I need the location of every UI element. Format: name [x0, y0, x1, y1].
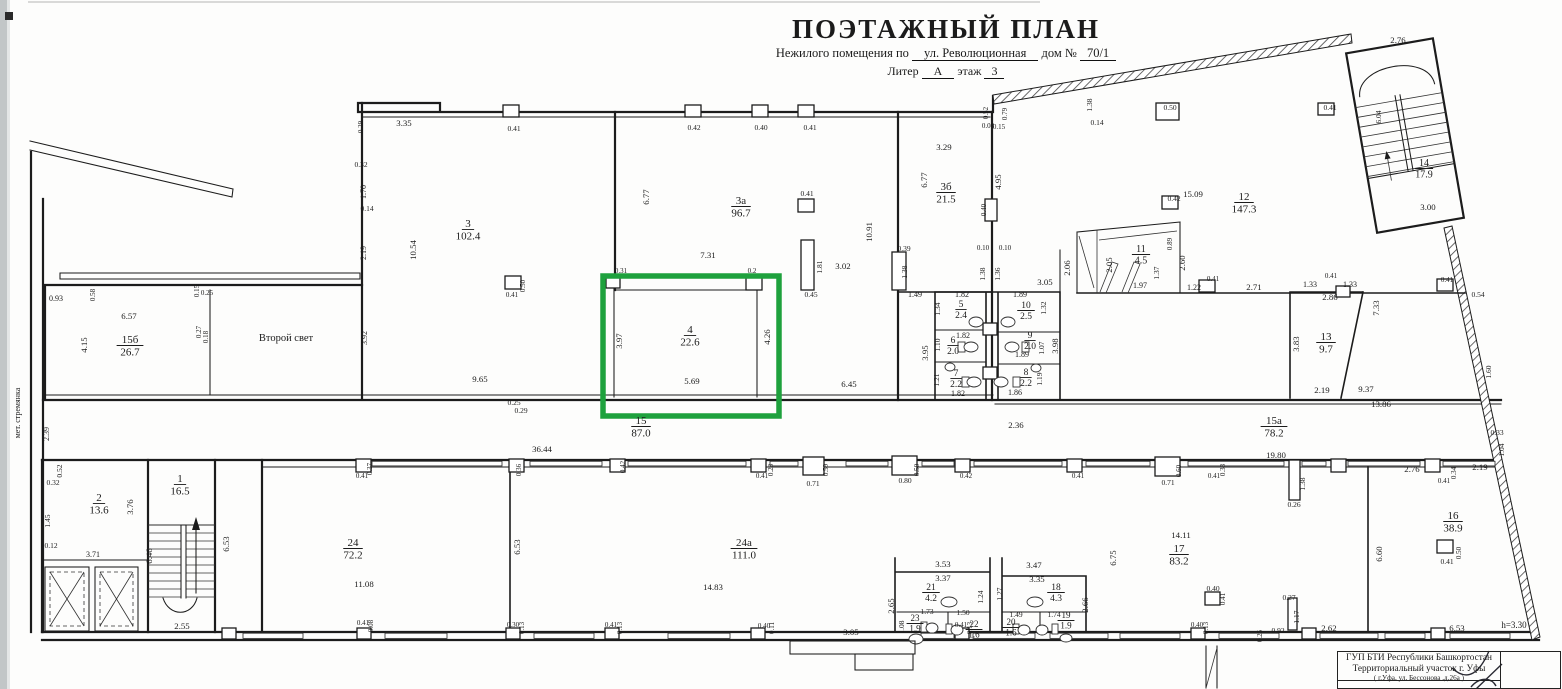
room-number: 12: [1239, 191, 1250, 203]
dimension-label: 3.35: [396, 118, 412, 128]
dimension-label: 0.41: [1325, 272, 1338, 280]
dimension-label: 1.45: [43, 514, 52, 527]
dimension-label: 1.27: [995, 587, 1004, 600]
dimension-label: 2.60: [1177, 255, 1187, 271]
dimension-label: 4.26: [762, 329, 772, 345]
dimension-label: 0.52: [55, 464, 64, 477]
room-number: 15б: [122, 334, 139, 346]
room-label: 2472.2: [343, 537, 363, 562]
stairs-direction-arrow: [192, 517, 200, 530]
dimension-label: 13.86: [1371, 399, 1391, 409]
dimension-label: 0.41: [1438, 477, 1451, 485]
room-number: 24а: [736, 537, 752, 549]
dimension-label: мет. стремянка: [13, 387, 22, 438]
dimension-label: 1.19: [1035, 372, 1044, 385]
dimension-label: 1.38: [900, 265, 909, 278]
dimension-label: 14.11: [1171, 530, 1190, 540]
dimension-label: 6.53: [512, 539, 522, 555]
room-number: 5: [959, 300, 964, 310]
room-label: 92.0: [1024, 331, 1036, 352]
room-label: 214.2: [922, 583, 940, 604]
room-number: 15а: [1266, 415, 1282, 427]
room-area: 16.5: [170, 486, 190, 498]
dimension-label: 2.39: [42, 427, 51, 441]
dimension-label: 1.34: [933, 302, 942, 315]
dimension-label: 0.31: [615, 267, 628, 275]
dimension-label: 0.13: [1202, 621, 1210, 634]
dimension-label: 1.81: [815, 260, 824, 273]
exterior-walls: [30, 34, 1540, 640]
dimension-label: 3.53: [935, 559, 951, 569]
dimension-label: 0.50: [1455, 546, 1463, 559]
dimension-label: 0.89: [1166, 237, 1174, 250]
dimension-label: 14.83: [703, 582, 723, 592]
dimension-label: 6.53: [1449, 623, 1465, 633]
dimension-label: 0.29: [514, 406, 527, 415]
dimension-label: 2.76: [1390, 35, 1406, 45]
liter-value: А: [922, 64, 955, 79]
dimension-label: 0.41: [1219, 592, 1227, 605]
dimension-label: 0.41: [506, 291, 519, 299]
dimension-label: 19.80: [1266, 450, 1286, 460]
dimension-label: 0.41: [1323, 103, 1336, 112]
dimension-label: 0.79: [1001, 107, 1009, 120]
dimension-label: 0.40: [1206, 584, 1219, 593]
dimension-label: 6.45: [841, 379, 857, 389]
room-number: 7: [954, 369, 959, 379]
room-label: 52.4: [955, 300, 967, 321]
dimension-label: 2.19: [1314, 385, 1330, 395]
dimension-label: 2.19: [1472, 462, 1488, 472]
dimension-label: 10.91: [864, 222, 874, 242]
room-number: 18: [1051, 583, 1061, 593]
room-label: 3б21.5: [936, 181, 956, 206]
dimension-label: 0.33: [1219, 463, 1227, 476]
room-number: 17: [1174, 543, 1186, 555]
room-number: 1: [177, 473, 183, 485]
dimension-label: 1.82: [951, 389, 965, 398]
room-number: 8: [1024, 368, 1029, 378]
dimension-label: 0.60: [1175, 464, 1183, 477]
dimension-label: 3.83: [1291, 336, 1301, 352]
room-area: 78.2: [1264, 428, 1283, 440]
bti-stamp: ГУП БТИ Республики Башкортостан Территор…: [1337, 651, 1561, 689]
house-number: 70/1: [1080, 46, 1116, 61]
room-number: 3: [465, 218, 471, 230]
dimension-label: 0.41: [1441, 276, 1454, 284]
room-area: 72.2: [343, 550, 362, 562]
room-number: 10: [1021, 301, 1031, 311]
stairs-bottom-left: [148, 517, 215, 612]
room-area: 111.0: [732, 550, 756, 562]
dimension-label: 0.41: [800, 189, 813, 198]
dimension-labels: 3.350.290.410.420.400.410.321.700.142.19…: [13, 35, 1527, 642]
floor-value: 3: [984, 64, 1004, 79]
interior-walls: [210, 250, 1465, 632]
dimension-label: 6.77: [919, 172, 929, 188]
dimension-label: 1.33: [1343, 280, 1357, 289]
room-area: 102.4: [456, 231, 481, 243]
room-label: 422.6: [680, 324, 700, 349]
room-number: 3а: [736, 195, 747, 207]
dimension-label: 1.73: [920, 607, 933, 616]
room-number: 4: [687, 324, 693, 336]
floor-plan-page: 3.350.290.410.420.400.410.321.700.142.19…: [0, 0, 1562, 689]
dimension-label: 1.32: [1039, 301, 1048, 314]
room-number: 9: [1028, 331, 1033, 341]
windows: [243, 461, 1510, 638]
room-label: 139.7: [1316, 331, 1336, 356]
room-label: 82.2: [1020, 368, 1032, 389]
dimension-label: 7.33: [1371, 300, 1381, 316]
dimension-label: 36.44: [532, 444, 552, 454]
room-label: 116.5: [170, 473, 190, 498]
dimension-label: 0.14: [1090, 118, 1103, 127]
dimension-label: 0.59: [822, 463, 830, 476]
dimension-label: 6.75: [1108, 550, 1118, 566]
room-number: 14: [1419, 158, 1429, 169]
dimension-label: h=3.30: [1501, 620, 1527, 630]
dimension-label: 3.92: [360, 331, 369, 345]
dimension-label: 0.13: [518, 621, 526, 634]
dimension-label: 1.60: [1484, 365, 1493, 378]
room-area: 17.9: [1415, 170, 1433, 181]
room-number: 13: [1321, 331, 1333, 343]
elevator-shafts: [45, 567, 138, 631]
dimension-label: 1.37: [1152, 266, 1161, 279]
room-area: 2.2: [950, 380, 962, 390]
room-label: 3102.4: [456, 218, 481, 243]
dimension-label: 3.37: [935, 573, 951, 583]
room-area: 4.3: [1050, 594, 1062, 604]
room-area: 26.7: [120, 347, 140, 359]
dimension-label: 11.08: [354, 579, 374, 589]
dimension-label: 0.27: [1282, 593, 1295, 602]
room-label: 72.2: [950, 369, 962, 390]
dimension-label: 3.02: [835, 261, 850, 271]
dimension-label: 1.04: [1497, 443, 1506, 456]
dimension-label: 0.36: [515, 463, 523, 476]
dimension-label: 3.05: [1037, 277, 1053, 287]
dimension-label: 0.42: [619, 460, 627, 473]
dimension-label: 0.41: [507, 124, 520, 133]
dimension-label: 0.93: [49, 294, 63, 303]
room-label: 1783.2: [1169, 543, 1189, 568]
dimension-label: 6.46: [144, 548, 154, 564]
title-subtitle: Нежилого помещения по ул. Революционная …: [728, 46, 1164, 61]
dimension-label: 0.41: [1072, 472, 1085, 480]
dimension-label: 3.71: [86, 550, 100, 559]
room-label: 213.6: [89, 492, 109, 517]
dimension-label: 0.18: [202, 330, 210, 343]
dimension-label: 1.24: [976, 590, 985, 603]
dimension-label: 0.33: [1490, 428, 1503, 437]
dimension-label: 0.26: [1287, 500, 1300, 509]
dimension-label: 1.89: [1013, 290, 1027, 299]
dimension-label: 0.54: [1471, 290, 1484, 299]
dimension-label: 0.50: [519, 279, 527, 292]
room-number: 16: [1448, 510, 1460, 522]
dimension-label: 6.53: [221, 536, 231, 552]
dimension-label: 0.41: [803, 123, 816, 132]
floor-plan-canvas: 3.350.290.410.420.400.410.321.700.142.19…: [0, 0, 1562, 689]
room-area: 83.2: [1169, 556, 1188, 568]
dimension-label: 3.29: [936, 142, 952, 152]
room-area: 13.6: [89, 505, 109, 517]
dimension-label: 0.40: [754, 123, 767, 132]
dimension-label: 4.95: [993, 174, 1003, 190]
dimension-label: 0.40: [980, 203, 988, 216]
dimension-label: 0.25: [201, 289, 214, 297]
dimension-label: 3.47: [1026, 560, 1042, 570]
dimension-label: 2.19: [359, 246, 368, 260]
room-area: 4.5: [1135, 256, 1148, 267]
dimension-label: 3.95: [920, 345, 930, 361]
dimension-label: 1.50: [956, 608, 969, 617]
room-area: 1.9: [909, 624, 921, 634]
dimension-label: 0.32: [354, 160, 367, 169]
room-area: 22.6: [680, 337, 700, 349]
stairwell-top-right: [1346, 38, 1464, 232]
title-block: ПОЭТАЖНЫЙ ПЛАН Нежилого помещения по ул.…: [728, 14, 1164, 79]
dimension-label: 0.42: [687, 123, 700, 132]
dimension-label: 0.39: [897, 244, 910, 253]
dimension-label: 1.38: [1298, 477, 1307, 490]
room-area: 96.7: [731, 208, 751, 220]
scan-edge-artifacts: [0, 0, 1040, 689]
dimension-label: 3.97: [614, 333, 624, 349]
dimension-label: Второй свет: [259, 333, 314, 344]
dimension-label: 3.05: [843, 627, 859, 637]
dimension-label: 1.82: [956, 331, 970, 340]
dimension-label: 2.65: [886, 598, 896, 614]
dimension-label: 2.71: [1246, 282, 1261, 292]
dimension-label: 1.22: [1187, 283, 1201, 292]
dimension-label: 0.41: [1207, 275, 1220, 283]
dimension-label: 0.42: [1167, 194, 1180, 203]
dimension-label: 0.08: [367, 619, 375, 632]
dimension-label: 5.69: [684, 376, 700, 386]
dimension-label: 2.36: [1008, 420, 1024, 430]
dimension-label: 9.37: [1358, 384, 1374, 394]
room-area: 21.5: [936, 194, 956, 206]
exterior-steps: [790, 641, 1217, 688]
room-area: 1.6: [1005, 628, 1017, 638]
room-area: 2.2: [1020, 379, 1032, 389]
dimension-label: 2.76: [1404, 464, 1420, 474]
dimension-label: 10.54: [408, 240, 418, 260]
room-area: 2.4: [955, 311, 967, 321]
room-number: 20: [1007, 617, 1017, 627]
dimension-label: 1.17: [1292, 610, 1301, 623]
structural-columns: [222, 103, 1453, 639]
dimension-label: 1.38: [978, 267, 987, 280]
room-area: 1.9: [1060, 621, 1072, 631]
dimension-label: 6.04: [1374, 110, 1383, 123]
dimension-label: 0.92: [1271, 626, 1284, 635]
room-label: 102.5: [1017, 301, 1035, 322]
room-area: 2.0: [1024, 342, 1036, 352]
stamp-empty-row: [1338, 680, 1500, 688]
room-area: 147.3: [1232, 204, 1257, 216]
dimension-label: 4.15: [79, 337, 89, 353]
dimension-label: 0.15: [993, 123, 1006, 131]
dimension-label: 6.77: [641, 189, 651, 205]
dimension-label: 0.71: [1161, 478, 1174, 487]
dimension-label: 0.50: [1163, 103, 1176, 112]
dimension-label: 0.37: [366, 462, 374, 475]
dimension-label: 0.10: [999, 244, 1012, 252]
dimension-label: 9.65: [472, 374, 488, 384]
room-label: 12147.3: [1232, 191, 1257, 216]
room-label: 3а96.7: [731, 195, 751, 220]
dimension-label: 0.52: [982, 106, 990, 119]
room-number: 15: [636, 415, 648, 427]
stamp-org: ГУП БТИ Республики Башкортостан: [1338, 653, 1500, 664]
room-area: 2.5: [1020, 312, 1032, 322]
dimension-label: 0.34: [1450, 466, 1458, 479]
dimension-label: 3.35: [1029, 574, 1045, 584]
dimension-label: 1.36: [993, 267, 1002, 280]
page-title: ПОЭТАЖНЫЙ ПЛАН: [728, 14, 1164, 45]
stamp-dept: Территориальный участок г. Уфы: [1338, 664, 1500, 675]
dimension-label: 0.45: [804, 290, 817, 299]
room-label: 114.5: [1132, 244, 1150, 267]
dimension-label: 0.23: [767, 463, 775, 476]
room-number: 21: [926, 583, 936, 593]
dimension-label: 2.66: [1080, 597, 1090, 613]
dimension-label: 0.58: [89, 288, 97, 301]
dimension-label: 1.08: [897, 620, 906, 633]
dimension-label: 0.12: [44, 541, 57, 550]
room-area: 38.9: [1443, 523, 1463, 535]
room-label: 1417.9: [1415, 158, 1433, 181]
street-name: ул. Революционная: [912, 46, 1038, 61]
dimension-label: 2.86: [1322, 292, 1338, 302]
room-number: 6: [951, 336, 956, 346]
dimension-label: 0.80: [898, 476, 911, 485]
dimension-label: 1.10: [933, 338, 942, 351]
dimension-label: 0.11: [768, 622, 776, 634]
room-label: 24а111.0: [731, 537, 758, 562]
room-area: 87.0: [631, 428, 651, 440]
dimension-label: 0.50: [913, 463, 921, 476]
room-area: 4.2: [925, 594, 937, 604]
room-number: 2: [96, 492, 102, 504]
room-area: 2.0: [947, 347, 959, 357]
dimension-label: 1.38: [1085, 98, 1094, 111]
title-liter-line: Литер А этаж 3: [728, 64, 1164, 79]
dimension-label: 1.86: [1008, 388, 1022, 397]
room-label: 15а78.2: [1261, 415, 1288, 440]
dimension-label: 2.55: [174, 621, 190, 631]
dimension-label: 3.00: [1420, 202, 1436, 212]
dimension-label: 3.98: [1050, 338, 1060, 354]
dimension-label: 0.25: [1256, 629, 1264, 642]
dimension-label: 0.29: [357, 120, 365, 133]
closet-room-11: [1077, 222, 1180, 293]
dimension-label: 1.97: [1133, 281, 1147, 290]
room-label: 15б26.7: [117, 334, 144, 359]
room-area: 9.7: [1319, 344, 1333, 356]
dimension-label: 1.49: [908, 290, 922, 299]
dimension-label: 1.33: [1303, 280, 1317, 289]
dimension-label: 0.71: [806, 479, 819, 488]
dimension-label: 1.82: [955, 290, 969, 299]
room-number: 23: [911, 613, 921, 623]
room-label: 1638.9: [1443, 510, 1463, 535]
dimension-label: 3.76: [125, 499, 135, 515]
dimension-label: 1.70: [359, 185, 368, 199]
dimension-label: 6.57: [121, 311, 137, 321]
room-label: 184.3: [1047, 583, 1065, 604]
dimension-label: 0.32: [46, 478, 59, 487]
dimension-label: 0.08: [982, 122, 995, 130]
dimension-label: 0.15: [193, 284, 201, 297]
dimension-label: 1.74: [1047, 610, 1060, 619]
stamp-right-cell: [1501, 652, 1560, 688]
dimension-label: 1.07: [1037, 341, 1046, 354]
dimension-label: 0.2: [748, 267, 757, 275]
dimension-label: 2.05: [1104, 257, 1114, 273]
room-number: 3б: [940, 181, 952, 193]
room-number: 22: [970, 619, 979, 629]
room-area: 1.6: [968, 630, 980, 640]
dimension-label: 15.09: [1183, 189, 1203, 199]
dimension-label: 2.62: [1321, 623, 1336, 633]
dimension-label: 0.13: [616, 621, 624, 634]
dimension-label: 2.06: [1062, 260, 1072, 276]
dimension-label: 0.42: [960, 472, 973, 480]
room-number: 24: [348, 537, 360, 549]
room-number: 19: [1062, 610, 1072, 620]
dimension-label: 7.31: [700, 250, 715, 260]
room-number: 11: [1136, 244, 1146, 255]
dimension-label: 0.14: [360, 204, 373, 213]
dimension-label: 0.41: [1440, 557, 1453, 566]
dimension-label: 6.60: [1374, 546, 1384, 562]
dimension-label: 1.21: [932, 373, 941, 386]
dimension-label: 0.10: [977, 244, 990, 252]
